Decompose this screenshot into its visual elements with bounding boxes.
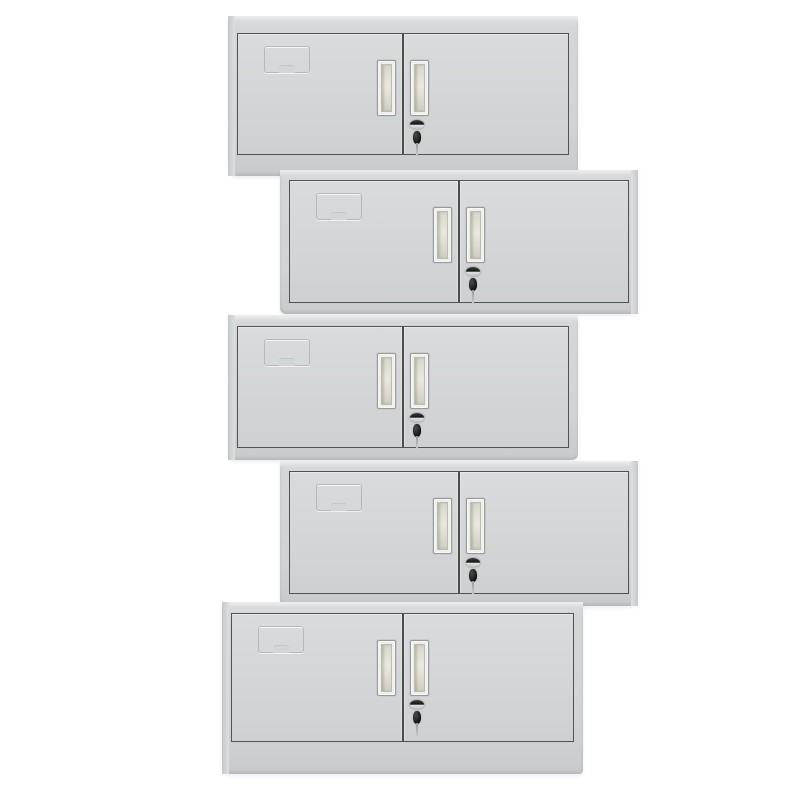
lock-keyhole: [466, 558, 480, 567]
cabinet-top-edge: [228, 16, 578, 22]
handle-groove: [414, 357, 425, 405]
handle-groove: [414, 644, 425, 692]
hanging-key-stem: [472, 581, 474, 594]
cabinet-door-panel: [289, 180, 629, 303]
cabinet-unit-5: [222, 602, 583, 774]
lock-keyhole: [466, 267, 480, 276]
cabinet-side-edge: [228, 315, 235, 460]
handle-groove: [470, 502, 481, 550]
cabinet-top-edge: [280, 461, 638, 467]
door-gap-line: [458, 472, 460, 593]
label-card-holder: [264, 46, 310, 73]
product-photo-stage: [0, 0, 800, 800]
hanging-key-stem: [416, 436, 418, 449]
cabinet-top-edge: [280, 170, 638, 176]
right-door-handle: [410, 353, 429, 409]
door-gap-line: [402, 614, 404, 741]
handle-groove: [470, 211, 481, 259]
handle-groove: [381, 644, 392, 692]
cabinet-unit-2: [280, 170, 638, 314]
label-card-holder: [264, 339, 310, 366]
cabinet-side-edge: [228, 16, 235, 176]
cabinet-door-panel: [289, 471, 629, 594]
label-card-holder: [258, 626, 304, 653]
right-door-handle: [410, 60, 429, 116]
cabinet-top-edge: [228, 315, 578, 321]
left-door-handle: [377, 640, 396, 696]
hanging-key-stem: [416, 723, 418, 736]
label-holder-notch: [273, 645, 289, 653]
left-door-handle: [433, 498, 452, 554]
handle-groove: [381, 357, 392, 405]
cabinet-side-edge: [222, 602, 229, 774]
label-holder-notch: [279, 358, 295, 366]
cabinet-unit-4: [280, 461, 638, 606]
door-gap-line: [458, 181, 460, 302]
cabinet-door-panel: [237, 33, 569, 155]
label-card-holder: [316, 193, 362, 220]
label-holder-notch: [331, 212, 347, 220]
left-door-handle: [377, 60, 396, 116]
cabinet-side-edge: [631, 461, 638, 606]
cabinet-unit-3: [228, 315, 578, 460]
lock-keyhole: [410, 120, 424, 129]
left-door-handle: [377, 353, 396, 409]
door-gap-line: [402, 34, 404, 154]
hanging-key-stem: [472, 290, 474, 303]
right-door-handle: [466, 498, 485, 554]
door-gap-line: [402, 327, 404, 447]
lock-keyhole: [410, 700, 424, 709]
handle-groove: [414, 64, 425, 112]
cabinet-top-edge: [222, 602, 583, 608]
label-holder-notch: [331, 503, 347, 511]
handle-groove: [381, 64, 392, 112]
handle-groove: [437, 502, 448, 550]
cabinet-door-panel: [231, 613, 574, 742]
lock-keyhole: [410, 413, 424, 422]
cabinet-door-panel: [237, 326, 569, 448]
left-door-handle: [433, 207, 452, 263]
right-door-handle: [410, 640, 429, 696]
label-holder-notch: [279, 65, 295, 73]
label-card-holder: [316, 484, 362, 511]
handle-groove: [437, 211, 448, 259]
right-door-handle: [466, 207, 485, 263]
cabinet-unit-1: [228, 16, 578, 176]
cabinet-side-edge: [631, 170, 638, 314]
hanging-key-stem: [416, 143, 418, 156]
